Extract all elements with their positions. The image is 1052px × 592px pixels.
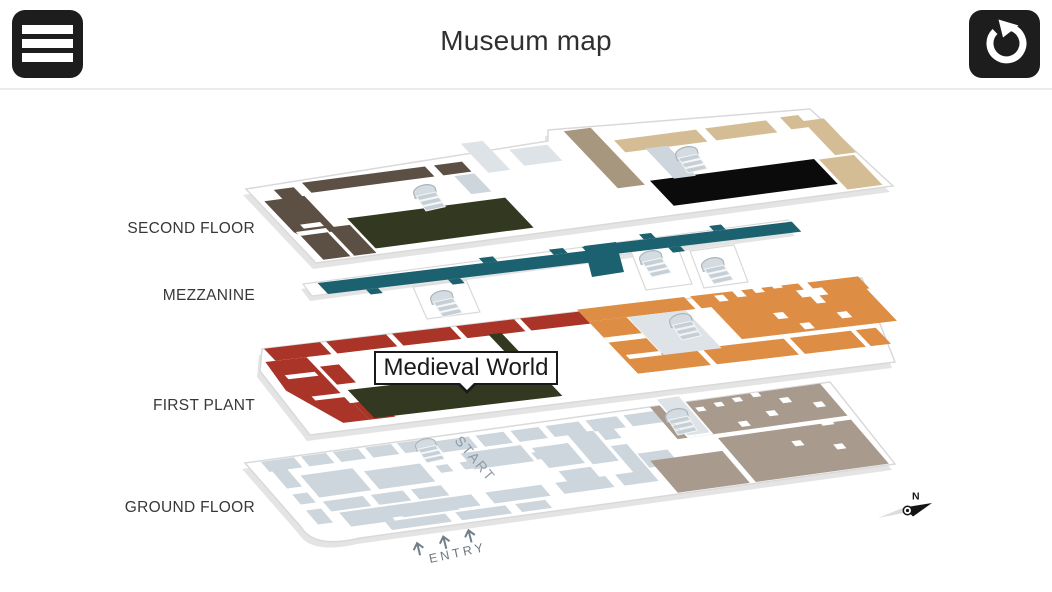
svg-text:ENTRY: ENTRY (428, 540, 488, 566)
svg-text:N: N (912, 491, 920, 503)
